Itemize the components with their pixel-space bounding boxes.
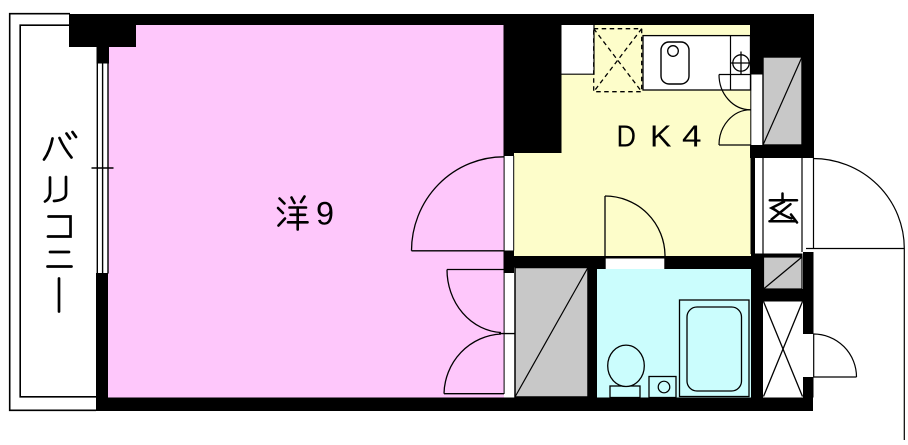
svg-text:4: 4 [682,119,702,154]
svg-text:K: K [650,119,672,154]
svg-text:D: D [617,119,637,154]
svg-text:9: 9 [316,196,334,232]
